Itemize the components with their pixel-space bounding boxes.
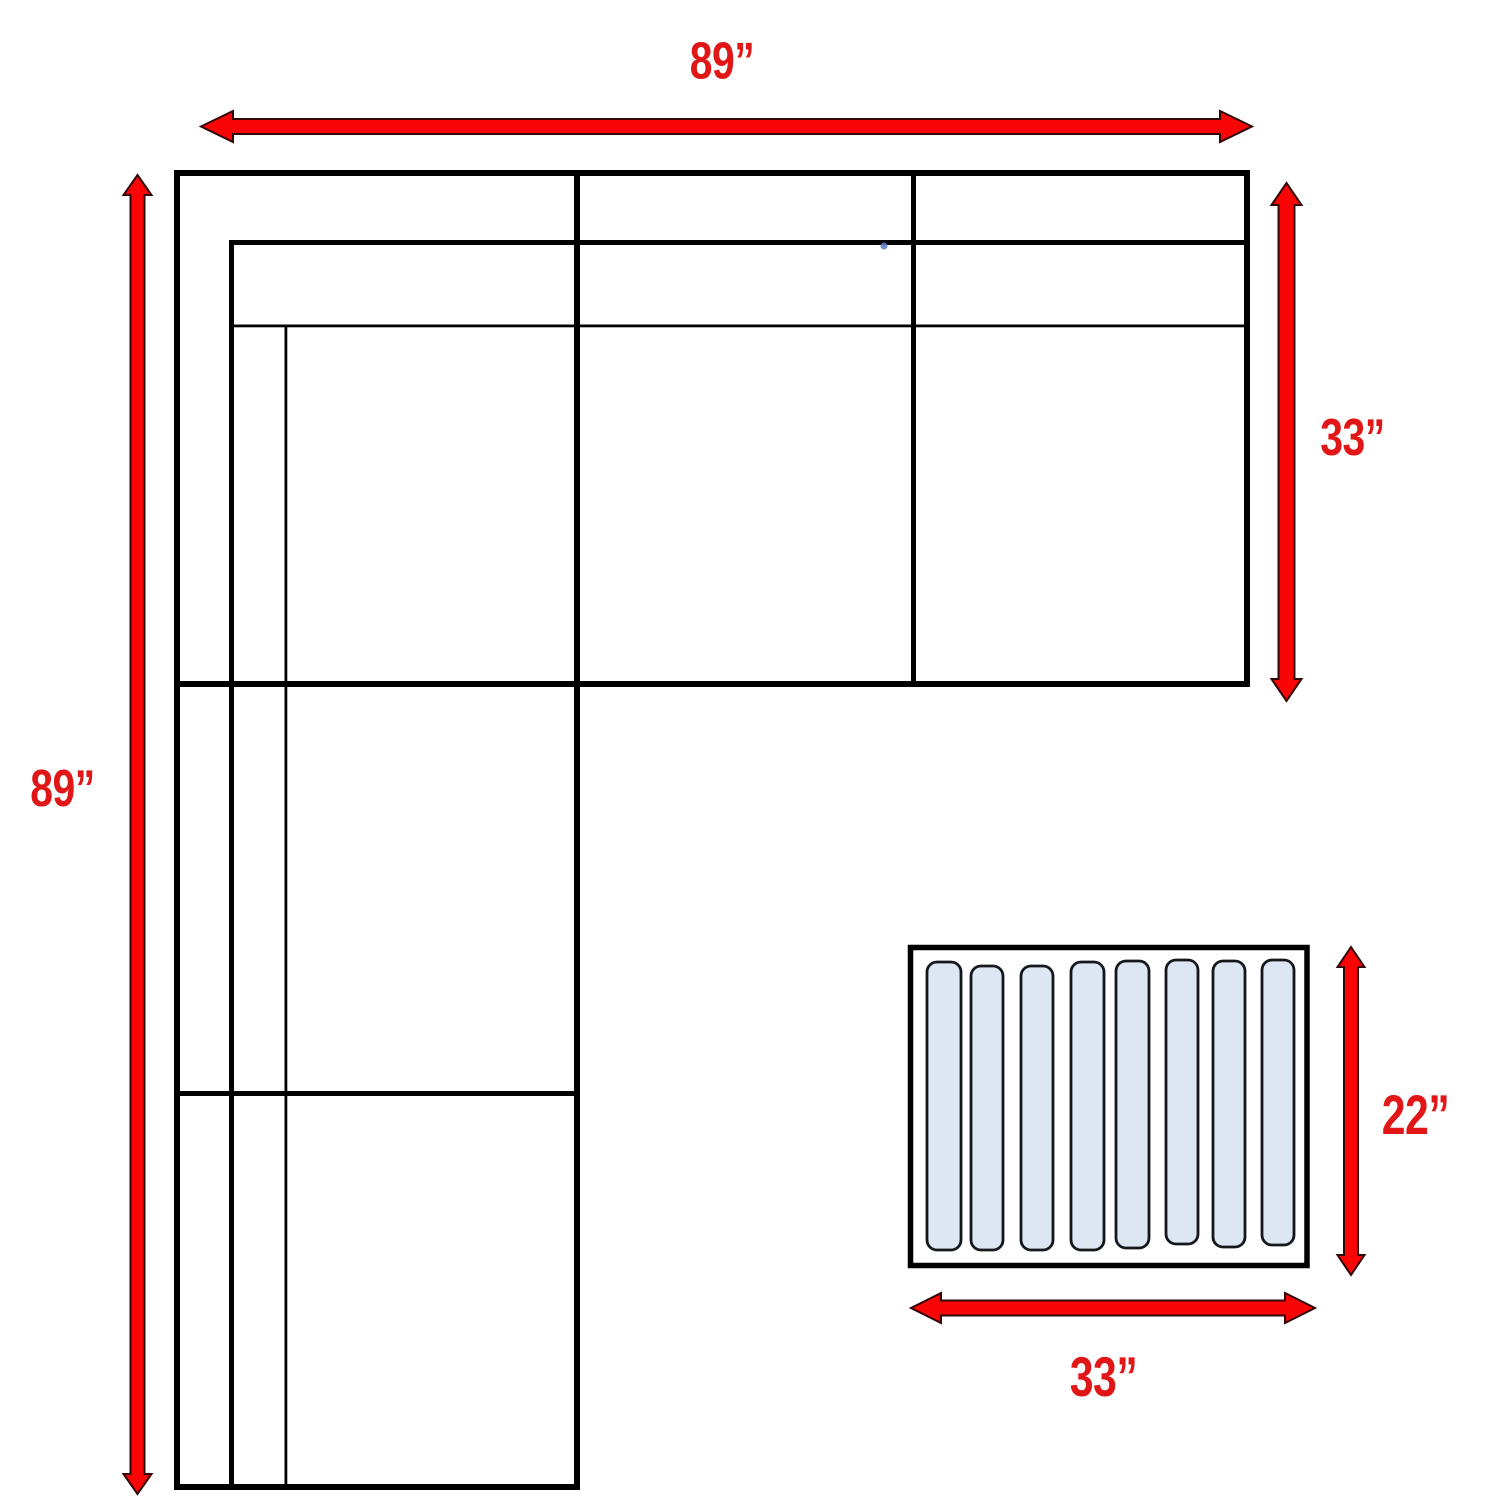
svg-text:89”: 89” [690, 32, 755, 90]
svg-text:22”: 22” [1382, 1085, 1450, 1146]
svg-text:33”: 33” [1320, 408, 1385, 466]
svg-text:89”: 89” [30, 759, 95, 817]
svg-text:33”: 33” [1070, 1347, 1138, 1408]
